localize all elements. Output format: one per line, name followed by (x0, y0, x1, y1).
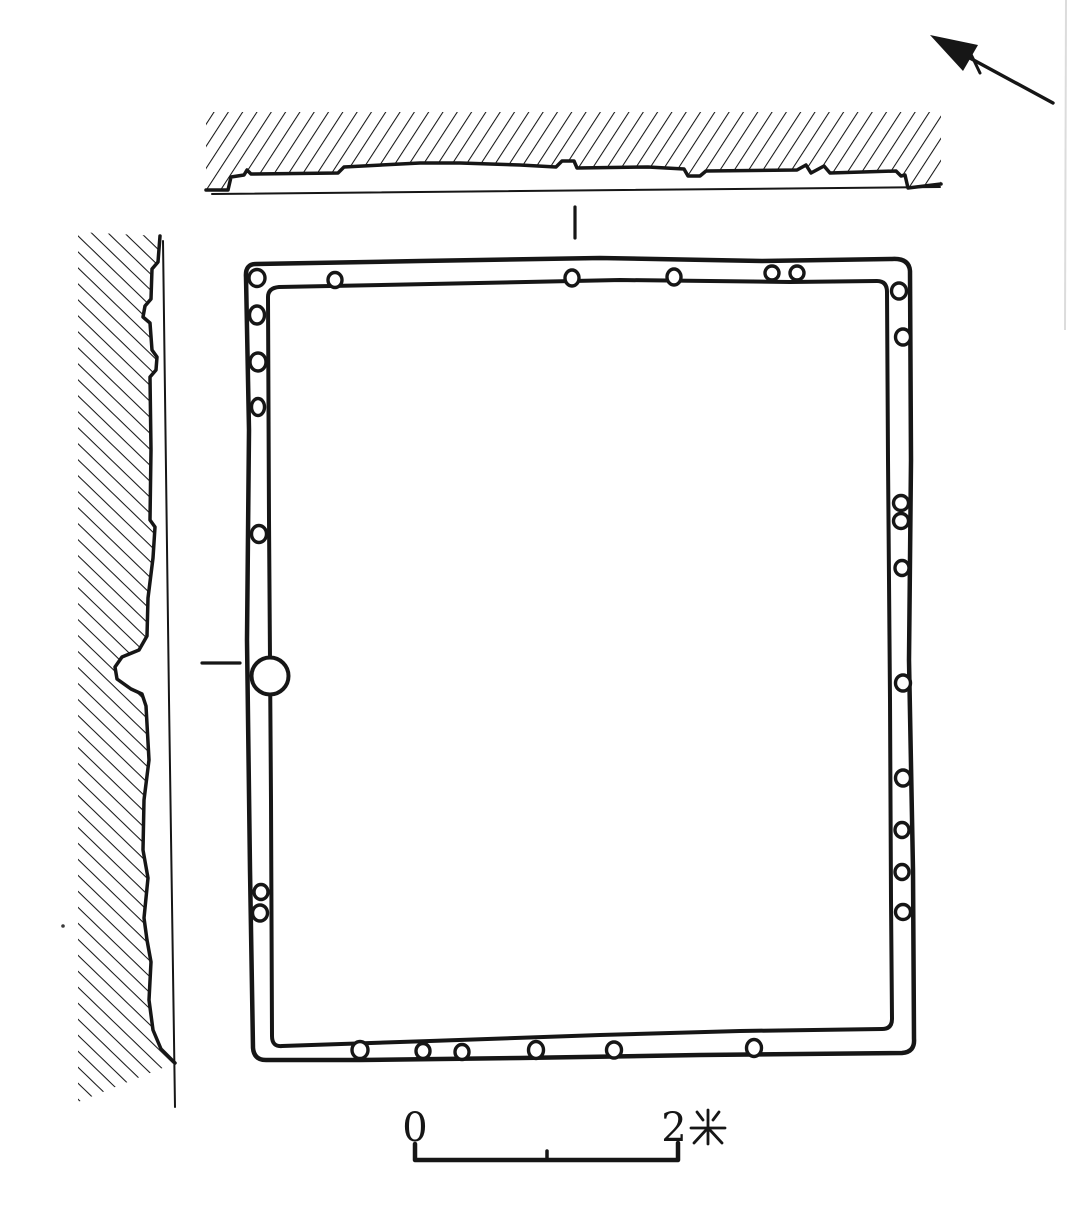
left-section-baseline (163, 241, 175, 1107)
posthole-circle (892, 283, 907, 299)
posthole-circle (896, 329, 911, 345)
scale-two-label: 2 (661, 1105, 686, 1151)
doorway-circle (252, 658, 289, 695)
house-plan-walls (246, 258, 914, 1060)
posthole-circle (895, 865, 909, 880)
posthole-circle (765, 266, 779, 280)
posthole-circle (896, 770, 911, 786)
posthole-circle (352, 1042, 368, 1059)
posthole-circle (328, 273, 342, 288)
postholes-layer (249, 266, 911, 1060)
posthole-circle (894, 496, 909, 511)
posthole-circle (607, 1042, 622, 1058)
left-wall-section (78, 232, 175, 1107)
posthole-circle (529, 1042, 544, 1059)
stray-ink-dot (61, 924, 65, 928)
posthole-circle (252, 526, 267, 543)
posthole-circle (250, 353, 266, 371)
plan-outer-wall-line (246, 258, 914, 1060)
posthole-circle (565, 270, 579, 286)
posthole-circle (455, 1045, 469, 1060)
posthole-circle (416, 1044, 430, 1059)
posthole-circle (254, 885, 268, 900)
site-plan-figure: 0 2 (0, 0, 1080, 1226)
scale-zero-label: 0 (402, 1105, 427, 1151)
left-section-hatch (78, 232, 175, 1102)
north-arrow-icon (930, 35, 1053, 103)
posthole-circle (253, 905, 268, 921)
posthole-circle (895, 561, 909, 576)
posthole-circle (790, 266, 804, 280)
page-edge-artifact (1065, 0, 1066, 330)
posthole-circle (896, 905, 911, 920)
scanned-drawing-page: 0 2 (0, 0, 1080, 1226)
posthole-circle (667, 269, 681, 285)
posthole-circle (252, 399, 265, 416)
posthole-circle (249, 270, 265, 287)
plan-inner-wall-line (268, 280, 892, 1046)
posthole-circle (894, 514, 909, 529)
posthole-circle (895, 823, 909, 838)
top-section-baseline (212, 187, 940, 194)
posthole-circle (250, 306, 265, 324)
posthole-circle (747, 1040, 762, 1057)
posthole-circle (896, 675, 911, 691)
top-wall-section (206, 112, 941, 194)
meter-unit-glyph (691, 1110, 725, 1144)
scale-bar: 0 2 (402, 1105, 725, 1160)
top-section-hatch (206, 112, 941, 190)
